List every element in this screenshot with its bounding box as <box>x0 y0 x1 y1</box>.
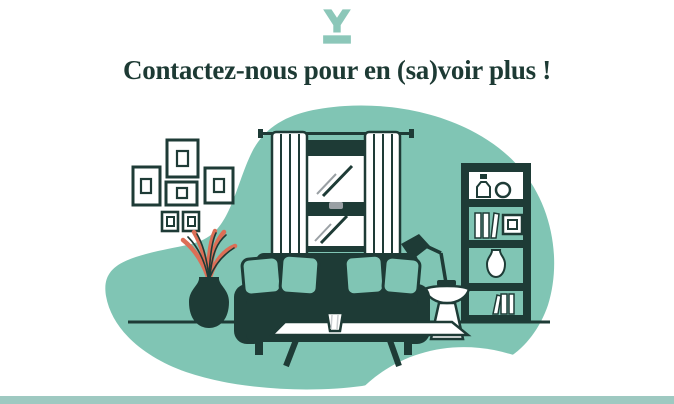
window-pane-top <box>305 156 367 202</box>
logo-y-shape <box>323 9 351 32</box>
window-icon <box>258 129 414 257</box>
footer-accent-bar <box>0 396 674 404</box>
shelf-ball <box>496 183 510 197</box>
curtain-left-icon <box>272 132 307 257</box>
sofa-icon <box>234 253 430 355</box>
contact-hero-section: Contactez-nous pour en (sa)voir plus ! <box>0 0 674 404</box>
brand-logo-icon <box>319 7 356 47</box>
lamp-base <box>437 280 456 286</box>
shelf-frame <box>503 215 522 234</box>
window-pane-bottom <box>305 216 367 246</box>
wall-frames-icon <box>133 140 233 231</box>
logo-base-bar <box>323 35 351 43</box>
living-room-illustration <box>0 100 674 396</box>
curtain-right-icon <box>365 132 400 257</box>
coffee-table-top <box>272 322 468 335</box>
page-title: Contactez-nous pour en (sa)voir plus ! <box>0 55 674 86</box>
bookshelf-icon <box>461 163 531 323</box>
window-latch <box>329 202 343 209</box>
shelf-bottle <box>477 182 490 197</box>
table-cup <box>327 313 343 331</box>
